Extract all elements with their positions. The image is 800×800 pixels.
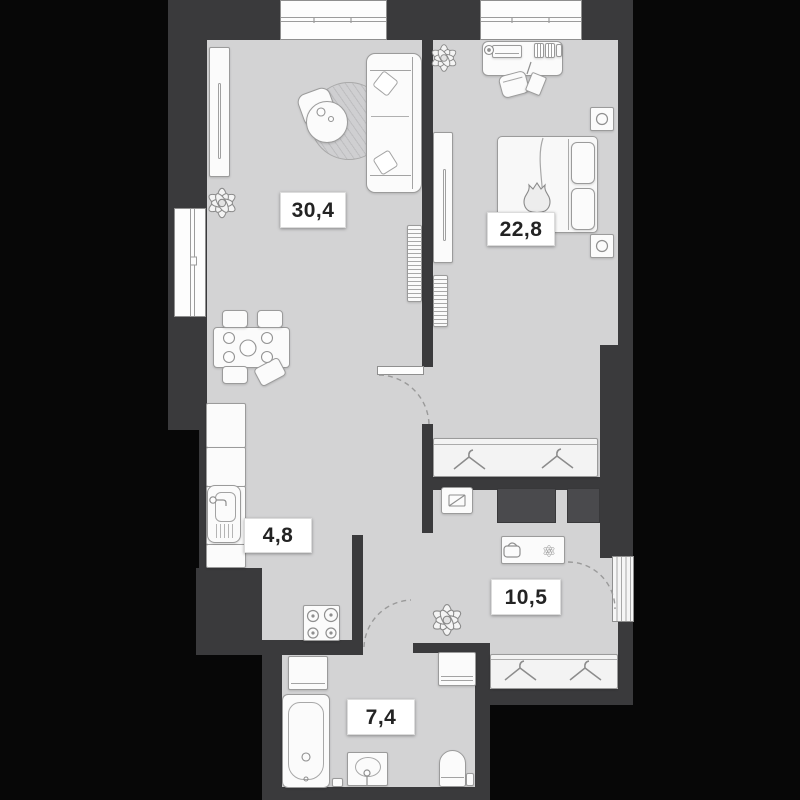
shoe-cabinet [441,487,473,514]
entry-door [612,556,634,622]
wall-segment [618,0,633,345]
closet-hanger-rod [433,438,598,477]
kitchen-drainer [213,524,235,538]
window [280,0,387,40]
wall-segment [600,345,633,558]
wall-segment [262,643,282,800]
bed-pillow-divider [568,139,569,230]
laptop-keyboard-line [495,53,519,54]
hallway-area-value: 10,5 [505,587,548,608]
bathtub [282,694,330,788]
toilet [439,750,466,787]
wall-segment [422,0,433,367]
books [534,43,544,58]
bedroom-area-value: 22,8 [500,219,543,240]
laptop [492,45,522,58]
kitchen-sink-bowl [215,492,236,522]
closet-shelf-line [491,659,617,660]
desk-chair-line [503,77,523,83]
wall-segment [352,535,363,643]
cabinet-line [291,683,325,684]
dining-chair [257,310,283,328]
desk-tray [556,44,562,57]
kitchen-counter [206,447,246,487]
room-label-bathroom: 7,4 [347,699,415,735]
wall-segment [422,424,433,533]
wall-segment [262,787,490,800]
sofa-cushion [372,149,398,175]
nightstand [590,107,614,131]
bathtub-basin [288,702,324,780]
wall-segment [618,620,633,690]
sofa-seat-line [371,116,409,117]
radiator-cabinet [433,275,448,327]
nightstand [590,234,614,258]
sofa-armrest-line [370,70,411,71]
room-label-living: 30,4 [280,192,346,228]
wall-segment [475,643,490,800]
pillow [571,142,595,184]
pillow [571,188,595,230]
coffee-table [306,101,348,143]
window-frame [281,17,386,22]
living-area-value: 30,4 [292,200,335,221]
sink-basin [355,757,381,777]
sofa-armrest-line [370,175,411,176]
dining-chair [222,366,248,384]
books [545,43,555,58]
wardrobe-handle [218,83,221,159]
sofa-cushion [372,70,399,97]
wardrobe-handle [443,169,446,241]
built-in-cabinet [497,488,556,523]
kitchen-counter [206,403,246,448]
kitchen-area-value: 4,8 [263,525,294,546]
window-frame [190,209,195,316]
washing-machine [438,652,476,686]
floor-plan: 30,4 22,8 4,8 10,5 7,4 [0,0,800,800]
kitchen-sink-unit [207,485,241,543]
kitchen-counter [206,544,246,568]
bathroom-cabinet [288,656,328,690]
room-label-kitchen: 4,8 [244,518,312,553]
toilet-tank-line [441,777,464,778]
window [174,208,206,317]
washer-door-line [441,676,473,681]
dining-chair [222,310,248,328]
tv-stand [407,225,422,302]
window [480,0,582,40]
room-label-bedroom: 22,8 [487,212,555,246]
window-frame [481,17,581,22]
wall-segment [196,568,262,655]
built-in-cabinet [567,488,600,523]
toilet-brush [466,773,474,786]
wardrobe [209,47,230,177]
closet-shelf-line [434,444,597,445]
bath-accessory [332,778,343,787]
wall-segment [490,689,633,705]
sofa [366,53,422,193]
bathroom-area-value: 7,4 [366,707,397,728]
bedroom-door-leaf [377,366,424,375]
wardrobe [433,132,453,263]
bathroom-sink [347,752,388,786]
stove [303,605,340,641]
room-label-hallway: 10,5 [491,579,561,615]
closet-hanger-rod [490,654,618,689]
sofa-back-line [412,57,413,189]
console-shelf [501,536,565,564]
